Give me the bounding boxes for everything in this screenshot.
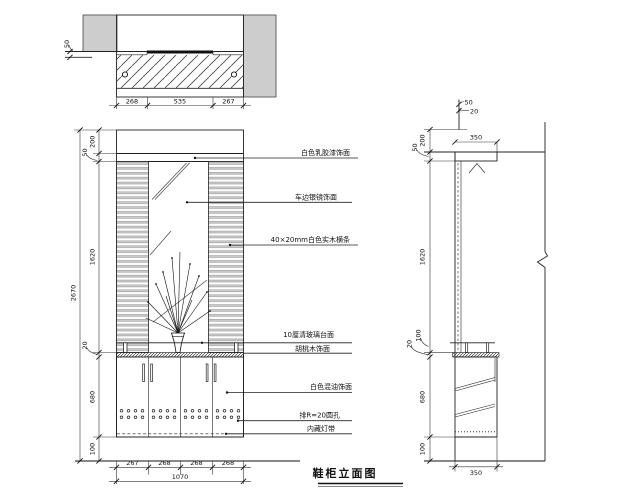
- vent-holes: [120, 410, 240, 419]
- side-dimensions: 200 50 1620 100 20 680 100 350: [406, 127, 504, 477]
- rail-post: [487, 343, 489, 353]
- front-dim-1620: 1620: [89, 249, 97, 266]
- side-dim-50: 50: [411, 143, 419, 151]
- side-dim-top50: 50: [465, 99, 473, 107]
- annotation-holes: 排R=20圆孔: [299, 411, 340, 420]
- countertop: [117, 353, 244, 358]
- side-dim-350-top: 350: [470, 134, 482, 142]
- plan-wall-right: [244, 15, 277, 97]
- front-dim-door2: 268: [158, 459, 170, 467]
- side-section: 50 20 350: [406, 99, 548, 477]
- rail-post-left: [124, 343, 128, 353]
- rail-post: [466, 343, 468, 353]
- front-dim-door3: 268: [190, 459, 202, 467]
- door-handle: [151, 364, 153, 382]
- front-dim-20: 20: [81, 341, 89, 349]
- front-dim-door4: 268: [222, 459, 234, 467]
- mirror-panel: [150, 163, 207, 322]
- plan-recess: [147, 51, 213, 54]
- shoe-cabinet-elevation-drawing: 268 535 267 50: [0, 0, 643, 500]
- louver-panel-left: [117, 162, 149, 353]
- plan-hatch-area: [117, 55, 244, 89]
- door-handle: [214, 364, 216, 382]
- rail-post-right: [235, 343, 239, 353]
- plan-dim-50: 50: [63, 40, 71, 48]
- side-dim-20: 20: [406, 340, 414, 348]
- plan-hole-left: [122, 72, 127, 77]
- annotation-slats: 40×20mm白色实木横条: [271, 235, 350, 244]
- plan-dim-left: 268: [126, 97, 138, 105]
- side-cabinet: [455, 357, 497, 437]
- front-dim-680: 680: [89, 391, 97, 403]
- plan-dim-mid: 535: [174, 97, 186, 105]
- front-dim-100: 100: [89, 443, 97, 455]
- cabinet-doors: [117, 357, 244, 437]
- side-dim-350-bottom: 350: [470, 469, 482, 477]
- annotation-light: 内藏灯带: [307, 424, 335, 433]
- front-dim-door1: 267: [126, 459, 138, 467]
- annotation-mirror: 车边银镜饰面: [295, 193, 337, 202]
- front-dim-total: 1070: [172, 473, 189, 481]
- annotation-paint: 白色乳胶漆饰面: [301, 148, 350, 157]
- door-handle: [206, 364, 208, 382]
- plan-hole-right: [231, 72, 236, 77]
- front-bottom-dimensions: 267 268 268 268 1070: [109, 459, 251, 484]
- cad-drawing-canvas: 268 535 267 50: [0, 0, 643, 500]
- front-left-dimensions: 200 50 1620 20 680 100 2670: [70, 127, 117, 463]
- annotation-walnut: 胡桃木饰面: [295, 344, 330, 353]
- wall-section-line: [538, 122, 548, 461]
- annotation-lacquer: 白色混油饰面: [310, 382, 352, 391]
- plan-dim-right: 267: [222, 97, 234, 105]
- title-block: 鞋柜立面图: [313, 466, 404, 487]
- side-top-board: [455, 152, 497, 161]
- side-dim-100-base: 100: [419, 443, 427, 455]
- annotation-glass-shelf: 10厘清玻璃台面: [283, 330, 334, 339]
- front-dim-overall: 2670: [70, 285, 78, 302]
- plan-wall-left: [83, 15, 117, 52]
- side-dim-1620: 1620: [419, 249, 427, 266]
- side-dim-200: 200: [419, 134, 427, 146]
- drawing-title: 鞋柜立面图: [313, 466, 378, 480]
- side-dim-680: 680: [419, 391, 427, 403]
- downlight-symbol: [469, 164, 485, 174]
- plan-view: 268 535 267 50: [63, 15, 276, 109]
- side-dim-top20: 20: [470, 108, 478, 116]
- side-dim-100-rail: 100: [415, 329, 423, 341]
- side-countertop: [453, 353, 500, 358]
- front-dim-50: 50: [81, 148, 89, 156]
- door-handle: [143, 364, 145, 382]
- front-dim-200: 200: [89, 136, 97, 148]
- louver-panel-right: [209, 162, 244, 353]
